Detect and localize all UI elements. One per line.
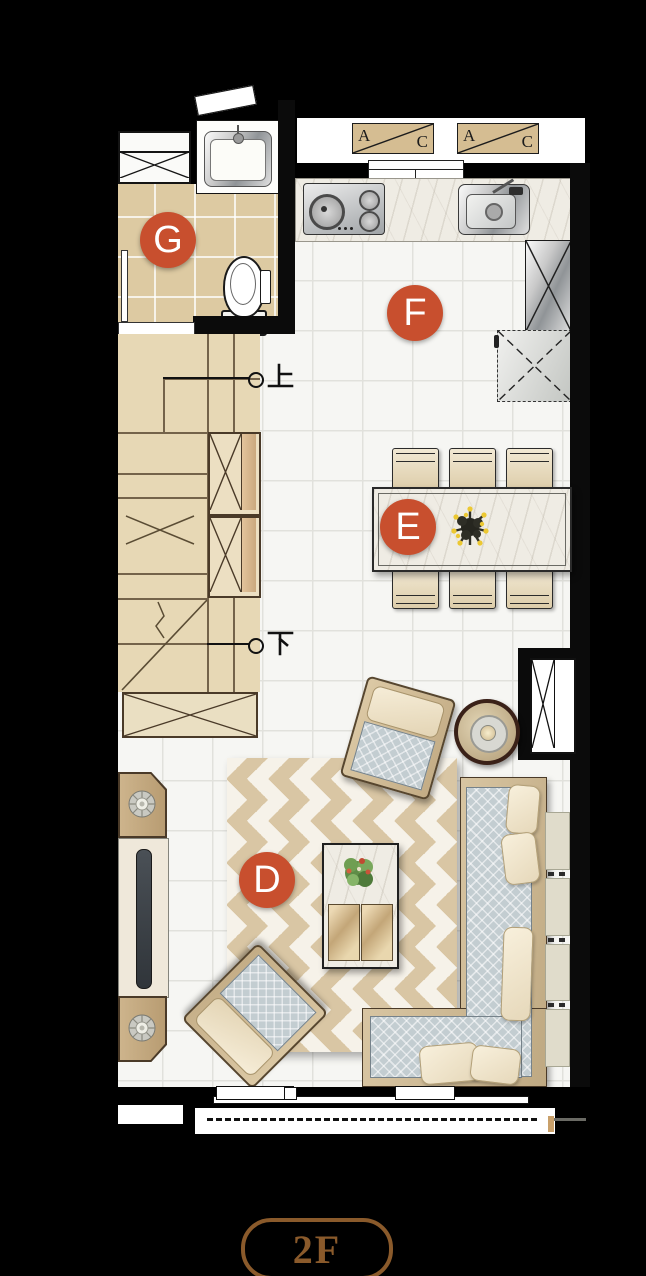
tv-console xyxy=(118,838,169,998)
sliding-door-panel xyxy=(395,1086,455,1100)
dining-chair xyxy=(392,448,439,490)
ac-letter-a: A xyxy=(358,127,370,144)
ac-shelf: A C A C xyxy=(297,118,585,163)
plant-icon xyxy=(122,784,162,824)
stove-burner xyxy=(309,194,345,230)
stair-down-leader xyxy=(207,643,249,645)
toilet-flush-panel xyxy=(260,270,271,304)
sofa-pillow xyxy=(469,1044,522,1086)
room-label-bathroom: G xyxy=(140,212,196,268)
room-label-text: D xyxy=(253,861,280,899)
right-window xyxy=(530,658,576,754)
stair-up-marker xyxy=(248,372,264,388)
ac-letter-c: C xyxy=(522,133,533,150)
stair-cabinet-upper xyxy=(208,432,261,516)
cabinet-handle xyxy=(494,335,499,348)
balcony-strip xyxy=(195,1108,555,1134)
dining-chair xyxy=(449,448,496,490)
coffee-table-tray xyxy=(328,904,360,961)
bathroom-window xyxy=(194,85,257,116)
dining-chair xyxy=(449,567,496,609)
ac-letter-c: C xyxy=(417,133,428,150)
tv-icon xyxy=(136,849,152,989)
plant-icon xyxy=(122,1008,162,1048)
bathroom-door-leaf xyxy=(121,250,128,322)
left-bottom-window xyxy=(118,1105,183,1124)
stair-cabinet-lower xyxy=(208,516,261,598)
room-label-text: G xyxy=(153,221,183,259)
floor-badge-text: 2F xyxy=(293,1226,341,1273)
ac-unit: A C xyxy=(457,123,539,154)
soap-tray xyxy=(509,187,523,195)
base-cabinet-icon xyxy=(497,330,572,402)
stair-up-leader xyxy=(163,377,249,379)
stair-down-label xyxy=(266,628,294,656)
sink-drain xyxy=(485,203,503,221)
balcony-rail-dashes xyxy=(207,1118,537,1121)
sliding-door-panel xyxy=(216,1086,294,1100)
stair-down-marker xyxy=(248,638,264,654)
room-label-text: F xyxy=(403,294,426,332)
refrigerator-icon xyxy=(525,240,572,332)
coffee-table xyxy=(322,843,399,969)
sofa-pillow xyxy=(505,784,541,836)
wall xyxy=(193,316,282,334)
side-table-round xyxy=(454,699,520,765)
ac-unit: A C xyxy=(352,123,434,154)
plant-stand xyxy=(118,996,167,1062)
floor-plan-canvas: A C A C xyxy=(0,0,646,1276)
room-label-dining: E xyxy=(380,499,436,555)
dining-chair xyxy=(506,448,553,490)
balcony-edge-line xyxy=(554,1118,586,1121)
coffee-table-tray xyxy=(361,904,393,961)
stove-icon xyxy=(303,183,385,235)
curtain-panel xyxy=(545,812,570,1067)
under-stair-storage xyxy=(122,692,258,738)
stair-up-label xyxy=(266,362,294,390)
dining-chair xyxy=(392,567,439,609)
coffee-table-plant-icon xyxy=(335,849,383,897)
stair-break-mark xyxy=(118,504,207,694)
sofa-pillow xyxy=(500,831,541,886)
stove-burner xyxy=(359,211,380,232)
sofa-pillow xyxy=(500,927,533,1022)
stove-burner xyxy=(359,190,380,211)
plant-stand xyxy=(118,772,167,838)
room-label-kitchen: F xyxy=(387,285,443,341)
door-stop xyxy=(284,1087,297,1100)
floor-badge: 2F xyxy=(241,1218,393,1276)
table-centerpiece-icon xyxy=(446,503,494,551)
washbasin-icon xyxy=(196,120,280,194)
wall xyxy=(278,100,295,334)
basin-faucet-icon xyxy=(233,133,244,144)
bathroom-cabinet xyxy=(118,131,191,184)
wall xyxy=(570,163,590,1087)
dining-chair xyxy=(506,567,553,609)
ac-letter-a: A xyxy=(463,127,475,144)
kitchen-sink-icon xyxy=(458,184,530,235)
room-label-living: D xyxy=(239,852,295,908)
room-label-text: E xyxy=(395,508,420,546)
